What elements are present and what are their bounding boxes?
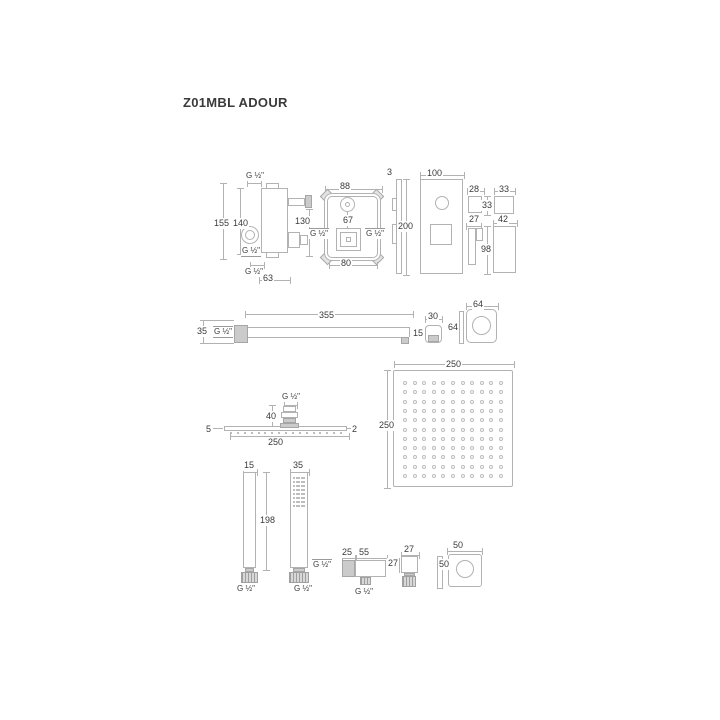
dim-label-33w: 33 — [498, 184, 510, 195]
nozzle-dot — [293, 505, 295, 507]
nozzle-dot — [461, 474, 465, 478]
dim-label-35: 35 — [292, 460, 304, 471]
dim-label-50w: 50 — [452, 540, 464, 551]
nozzle-dot — [499, 418, 503, 422]
nozzle-dot — [441, 418, 445, 422]
nozzle-dot — [499, 400, 503, 404]
dim-label-155: 155 — [213, 218, 230, 229]
nozzle-dot — [470, 455, 474, 459]
dim-label-64w: 64 — [472, 299, 484, 310]
dim-label-g-left: G ½" — [236, 584, 256, 594]
valve-top-port — [266, 183, 279, 189]
nozzle-dot — [470, 446, 474, 450]
nozzle-dot — [403, 474, 407, 478]
dim-label-15: 15 — [243, 460, 255, 471]
dim-label-42: 42 — [497, 214, 509, 225]
dim-label-28: 28 — [468, 184, 480, 195]
nozzle-dot — [298, 477, 300, 479]
dim-label-g-right: G ½" — [293, 584, 313, 594]
nozzle-dot — [499, 409, 503, 413]
dim-label-g-left: G ½" — [309, 228, 329, 239]
cartridge-stub-end — [300, 235, 308, 245]
product-code-title: Z01MBL ADOUR — [183, 95, 288, 110]
plate-profile-boss — [392, 198, 397, 211]
arm-tube-end — [409, 327, 410, 337]
nozzle-dot — [461, 428, 465, 432]
nozzle-dot — [303, 485, 305, 487]
nozzle-dot — [403, 409, 407, 413]
nozzle-dot — [489, 381, 493, 385]
valve-body-outline — [261, 188, 288, 253]
dim-label-198: 198 — [259, 515, 276, 526]
dim-label-250w: 250 — [445, 359, 462, 370]
extension-line — [200, 320, 234, 321]
nozzle-dot — [489, 455, 493, 459]
nozzle-dot — [461, 418, 465, 422]
elbow-front-view — [401, 556, 418, 573]
nozzle-dot — [441, 474, 445, 478]
dim-label-g: G ½" — [281, 392, 301, 402]
elbow-outlet-thread — [360, 577, 371, 585]
nozzle-dot — [470, 474, 474, 478]
nozzle-dot — [422, 455, 426, 459]
nozzle-dot — [413, 474, 417, 478]
nozzle-dot — [480, 428, 484, 432]
nozzle-dot — [432, 455, 436, 459]
nozzle-dot — [403, 428, 407, 432]
nozzle-dot — [499, 390, 503, 394]
nozzle-dot — [432, 446, 436, 450]
arm-wall-fitting — [234, 325, 248, 343]
nozzle-dot — [451, 437, 455, 441]
elbow-wall-end — [342, 560, 355, 577]
dim-label-250: 250 — [267, 437, 284, 448]
nozzle-dot — [461, 446, 465, 450]
dim-label-355: 355 — [318, 310, 335, 321]
nozzle-dot — [480, 381, 484, 385]
nozzle-dot — [422, 400, 426, 404]
nozzle-dot — [451, 400, 455, 404]
nozzle-dot — [432, 437, 436, 441]
leader-line — [213, 428, 223, 429]
nozzle-dot — [489, 474, 493, 478]
nozzle-dot — [293, 501, 295, 503]
nozzle-dot — [441, 400, 445, 404]
dim-line-250 — [230, 433, 350, 440]
nozzle-dot — [489, 437, 493, 441]
nozzle-dot — [422, 390, 426, 394]
dim-label-27h: 27 — [387, 558, 399, 569]
extension-line — [200, 343, 234, 344]
nozzle-dot — [413, 390, 417, 394]
nozzle-dot — [461, 400, 465, 404]
handle-side-view — [468, 228, 476, 265]
nozzle-dot — [470, 400, 474, 404]
nozzle-dot — [451, 418, 455, 422]
nozzle-dot — [470, 409, 474, 413]
nozzle-dot — [298, 485, 300, 487]
nozzle-dot — [403, 400, 407, 404]
flange-side-profile — [459, 311, 464, 344]
plate-handle-hole — [430, 224, 452, 245]
nozzle-dot — [451, 455, 455, 459]
spec-sheet: Z01MBL ADOUR G ½" 155 140 130 G ½" G ½" … — [0, 0, 720, 720]
nozzle-dot — [403, 446, 407, 450]
nozzle-dot — [480, 409, 484, 413]
dim-line-27h — [399, 558, 400, 573]
dim-label-25: 25 — [341, 547, 353, 558]
nozzle-dot — [489, 400, 493, 404]
dim-label-g: G ½" — [213, 326, 233, 338]
dim-line — [247, 180, 262, 187]
dim-label-63: 63 — [262, 273, 274, 284]
nozzle-dot — [499, 381, 503, 385]
dim-label-g-right: G ½" — [365, 228, 385, 239]
dim-line-80 — [329, 262, 378, 269]
dim-label-55: 55 — [358, 547, 370, 558]
nozzle-dot — [451, 390, 455, 394]
dim-label-2: 2 — [351, 424, 358, 435]
arm-tube-top — [248, 327, 409, 328]
nozzle-dot — [422, 474, 426, 478]
nozzle-dot — [451, 474, 455, 478]
dim-label-80: 80 — [340, 258, 352, 269]
nozzle-dot — [403, 418, 407, 422]
nozzle-dot — [293, 481, 295, 483]
elbow-body — [355, 560, 386, 577]
nozzle-dot — [413, 428, 417, 432]
nozzle-dot — [480, 455, 484, 459]
dim-label-g-top: G ½" — [245, 171, 265, 181]
dim-label-15: 15 — [412, 328, 424, 339]
nozzle-dot — [432, 465, 436, 469]
nozzle-dot — [499, 455, 503, 459]
nozzle-dot — [413, 446, 417, 450]
wand-spray-face — [293, 477, 305, 507]
dim-label-g-out: G ½" — [354, 587, 374, 597]
dim-label-33h: 33 — [481, 200, 493, 211]
nozzle-dot — [413, 409, 417, 413]
nozzle-dot — [403, 381, 407, 385]
elbow-connector — [402, 576, 416, 587]
outlet-flange-hole — [456, 560, 474, 578]
dim-label-g-bottom: G ½" — [244, 267, 264, 277]
nozzle-dot — [303, 501, 305, 503]
dim-label-140: 140 — [232, 218, 249, 229]
nozzle-dot — [413, 437, 417, 441]
nozzle-dot — [489, 465, 493, 469]
nozzle-dot — [298, 493, 300, 495]
nozzle-dot — [451, 409, 455, 413]
nozzle-dot — [451, 381, 455, 385]
dim-label-88: 88 — [339, 181, 351, 192]
handle-side-boss — [476, 228, 483, 241]
nozzle-dot — [403, 465, 407, 469]
nozzle-dot — [461, 409, 465, 413]
nozzle-dot — [480, 474, 484, 478]
dim-label-27w: 27 — [403, 544, 415, 555]
nozzle-dot — [432, 381, 436, 385]
valve-bottom-port — [266, 252, 279, 258]
diverter-stem — [288, 198, 305, 206]
dim-label-g-in: G ½" — [312, 559, 332, 570]
nozzle-dot — [441, 381, 445, 385]
nozzle-dot — [432, 418, 436, 422]
nozzle-dot — [470, 437, 474, 441]
nozzle-dot — [303, 505, 305, 507]
nozzle-dot — [403, 437, 407, 441]
dim-label-200: 200 — [397, 221, 414, 232]
dim-label-3: 3 — [386, 167, 393, 178]
nozzle-dot — [470, 428, 474, 432]
nozzle-dot — [298, 505, 300, 507]
nozzle-dot — [432, 409, 436, 413]
nozzle-dot — [422, 446, 426, 450]
nozzle-dot — [441, 409, 445, 413]
head-connector-base — [280, 423, 299, 428]
nozzle-dot — [298, 489, 300, 491]
knob-front-view — [494, 196, 514, 214]
knob-side-view — [468, 196, 482, 213]
nozzle-dot — [422, 409, 426, 413]
dim-label-30: 30 — [427, 311, 439, 322]
arm-tube-bottom — [248, 337, 409, 338]
nozzle-dot — [451, 465, 455, 469]
nozzle-dot — [441, 455, 445, 459]
diverter-knob-center — [345, 202, 350, 207]
nozzle-dot — [489, 428, 493, 432]
dim-label-250h: 250 — [378, 420, 395, 431]
nozzle-dot — [422, 465, 426, 469]
nozzle-dot — [403, 455, 407, 459]
dim-label-5: 5 — [205, 424, 212, 435]
nozzle-dot — [413, 455, 417, 459]
nozzle-dot — [489, 390, 493, 394]
nozzle-dot — [303, 489, 305, 491]
nozzle-dot — [461, 381, 465, 385]
nozzle-dot — [432, 400, 436, 404]
nozzle-dot — [293, 497, 295, 499]
arm-flange-hole — [472, 316, 491, 335]
nozzle-dot — [489, 446, 493, 450]
nozzle-dot — [489, 409, 493, 413]
nozzle-dot — [499, 465, 503, 469]
nozzle-dot — [461, 437, 465, 441]
nozzle-dot — [413, 381, 417, 385]
cartridge-stub — [288, 232, 300, 248]
nozzle-dot — [303, 481, 305, 483]
cartridge-center — [346, 237, 351, 242]
head-nozzle-grid — [403, 381, 503, 478]
wand-side-view — [243, 472, 256, 568]
nozzle-dot — [298, 497, 300, 499]
dim-label-64h: 64 — [447, 322, 459, 333]
dim-label-130: 130 — [294, 216, 311, 227]
diverter-stem-end — [305, 195, 312, 208]
wand-connector — [241, 572, 258, 583]
dim-label-98: 98 — [480, 244, 492, 255]
nozzle-dot — [422, 428, 426, 432]
plate-knob-hole — [435, 196, 449, 210]
nozzle-dot — [303, 493, 305, 495]
nozzle-dot — [432, 428, 436, 432]
dim-label-27: 27 — [468, 214, 480, 225]
nozzle-dot — [298, 481, 300, 483]
nozzle-dot — [461, 455, 465, 459]
wand-connector — [289, 572, 309, 583]
nozzle-dot — [451, 446, 455, 450]
nozzle-dot — [413, 400, 417, 404]
nozzle-dot — [480, 465, 484, 469]
nozzle-dot — [470, 465, 474, 469]
arm-escutcheon-base — [428, 335, 439, 342]
nozzle-dot — [293, 485, 295, 487]
nozzle-dot — [461, 390, 465, 394]
dim-label-40: 40 — [265, 411, 277, 422]
arm-outlet-nipple — [401, 337, 409, 344]
dim-label-g-mid: G ½" — [241, 246, 261, 257]
nozzle-dot — [303, 477, 305, 479]
nozzle-dot — [298, 501, 300, 503]
nozzle-dot — [480, 418, 484, 422]
nozzle-dot — [489, 418, 493, 422]
valve-front-port-inner — [245, 230, 255, 240]
nozzle-dot — [470, 418, 474, 422]
nozzle-dot — [403, 390, 407, 394]
nozzle-dot — [441, 446, 445, 450]
dim-label-67: 67 — [342, 215, 354, 226]
nozzle-dot — [480, 446, 484, 450]
nozzle-dot — [293, 477, 295, 479]
nozzle-dot — [441, 437, 445, 441]
nozzle-dot — [470, 390, 474, 394]
nozzle-dot — [480, 390, 484, 394]
nozzle-dot — [432, 474, 436, 478]
nozzle-dot — [499, 474, 503, 478]
nozzle-dot — [432, 390, 436, 394]
nozzle-dot — [441, 428, 445, 432]
nozzle-dot — [499, 428, 503, 432]
nozzle-dot — [499, 437, 503, 441]
nozzle-dot — [293, 493, 295, 495]
nozzle-dot — [422, 418, 426, 422]
nozzle-dot — [293, 489, 295, 491]
nozzle-dot — [422, 437, 426, 441]
nozzle-dot — [480, 400, 484, 404]
dim-label-100: 100 — [426, 168, 443, 179]
nozzle-dot — [441, 465, 445, 469]
nozzle-dot — [422, 381, 426, 385]
nozzle-dot — [451, 428, 455, 432]
nozzle-dot — [480, 437, 484, 441]
nozzle-dot — [303, 497, 305, 499]
dim-label-50h: 50 — [438, 559, 450, 570]
nozzle-dot — [470, 381, 474, 385]
nozzle-dot — [413, 418, 417, 422]
nozzle-dot — [441, 390, 445, 394]
nozzle-dot — [461, 465, 465, 469]
nozzle-dot — [499, 446, 503, 450]
handle-front-view — [493, 226, 516, 273]
dim-label-35: 35 — [196, 326, 208, 337]
nozzle-dot — [413, 465, 417, 469]
